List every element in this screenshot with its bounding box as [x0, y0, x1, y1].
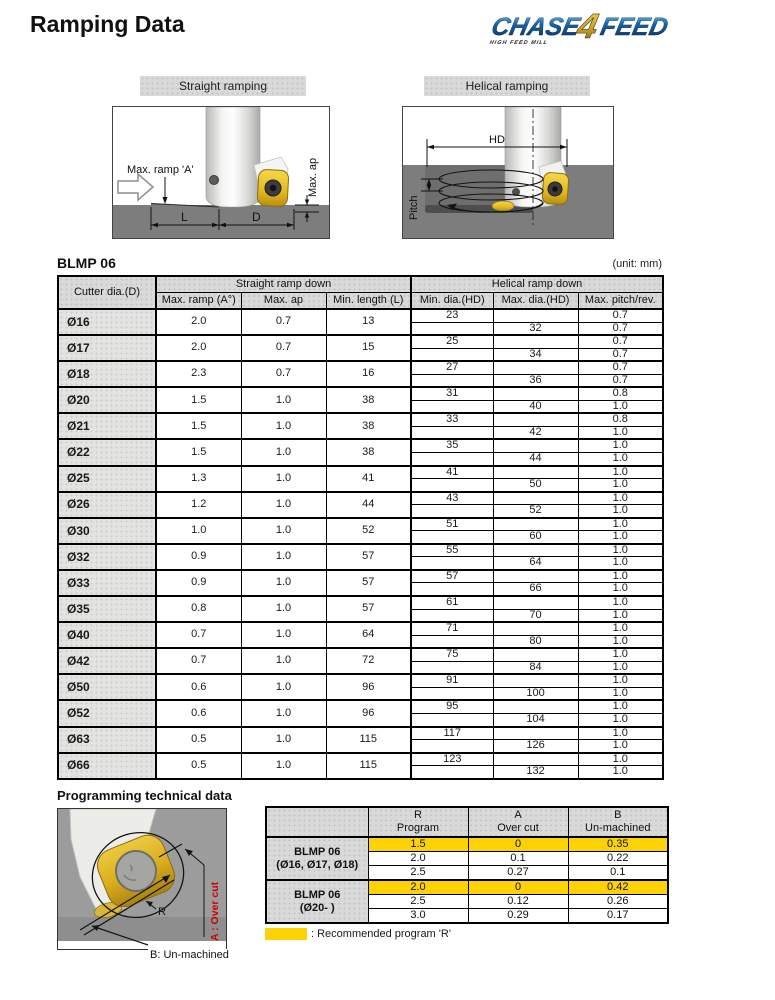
min-dia-cell [411, 505, 493, 518]
r-program-cell: 1.5 [368, 837, 468, 852]
max-dia-cell [493, 518, 578, 531]
max-ramp-cell: 2.0 [156, 335, 241, 361]
min-dia-cell [411, 766, 493, 779]
col-header-min-length: Min. length (L) [326, 293, 411, 310]
min-dia-cell: 35 [411, 439, 493, 452]
max-dia-cell [493, 309, 578, 322]
tool-body [206, 107, 260, 207]
pitch-cell: 1.0 [578, 570, 663, 583]
logo-tagline: HIGH FEED MILL [489, 40, 548, 46]
a-overcut-cell: 0.29 [468, 909, 568, 924]
max-dia-cell: 126 [493, 740, 578, 753]
min-length-cell: 38 [326, 413, 411, 439]
max-dia-cell [493, 674, 578, 687]
max-dia-cell [493, 387, 578, 400]
page-title: Ramping Data [30, 11, 185, 38]
unit-label: (unit: mm) [57, 258, 662, 270]
pitch-cell: 1.0 [578, 648, 663, 661]
workpiece [113, 205, 329, 238]
feed-direction-arrow [118, 174, 153, 200]
min-length-cell: 72 [326, 648, 411, 674]
pitch-cell: 1.0 [578, 596, 663, 609]
group-header-helical: Helical ramp down [411, 276, 663, 293]
max-ap-cell: 1.0 [241, 727, 326, 753]
max-dia-cell: 32 [493, 322, 578, 335]
cutter-dia-cell: Ø20 [58, 387, 156, 413]
max-ap-cell: 1.0 [241, 622, 326, 648]
min-dia-cell [411, 531, 493, 544]
max-ramp-cell: 1.2 [156, 492, 241, 518]
cutter-dia-cell: Ø63 [58, 727, 156, 753]
max-ramp-cell: 0.9 [156, 570, 241, 596]
max-dia-cell: 40 [493, 400, 578, 413]
group-header-straight: Straight ramp down [156, 276, 411, 293]
max-ramp-cell: 0.8 [156, 596, 241, 622]
prog-header-a: AOver cut [468, 807, 568, 837]
cutter-dia-cell: Ø21 [58, 413, 156, 439]
legend-text: : Recommended program 'R' [311, 928, 451, 940]
prog-header-blank [266, 807, 368, 837]
cutter-dia-cell: Ø17 [58, 335, 156, 361]
b-unmachined-cell: 0.1 [568, 866, 668, 881]
chase4feed-logo: CHASE 4 FEED HIGH FEED MILL [482, 8, 700, 50]
min-length-cell: 57 [326, 596, 411, 622]
pitch-cell: 1.0 [578, 466, 663, 479]
max-ramp-cell: 1.5 [156, 413, 241, 439]
min-dia-cell [411, 609, 493, 622]
min-length-cell: 57 [326, 544, 411, 570]
min-length-cell: 52 [326, 518, 411, 544]
min-dia-cell [411, 557, 493, 570]
col-header-max-pitch: Max. pitch/rev. [578, 293, 663, 310]
min-length-cell: 15 [326, 335, 411, 361]
pitch-cell: 1.0 [578, 674, 663, 687]
pitch-cell: 1.0 [578, 753, 663, 766]
r-program-cell: 2.0 [368, 852, 468, 866]
r-program-cell: 2.0 [368, 880, 468, 895]
min-dia-cell: 51 [411, 518, 493, 531]
cutter-dia-cell: Ø25 [58, 466, 156, 492]
min-dia-cell: 25 [411, 335, 493, 348]
b-unmachined-cell: 0.26 [568, 895, 668, 909]
min-dia-cell: 75 [411, 648, 493, 661]
max-ap-cell: 1.0 [241, 700, 326, 726]
programming-heading: Programming technical data [57, 788, 232, 803]
pitch-cell: 1.0 [578, 492, 663, 505]
min-dia-cell [411, 348, 493, 361]
min-length-cell: 38 [326, 387, 411, 413]
max-ap-cell: 0.7 [241, 335, 326, 361]
min-dia-cell: 95 [411, 700, 493, 713]
max-ramp-cell: 0.7 [156, 648, 241, 674]
d-dimension-label: D [252, 210, 261, 224]
max-ramp-cell: 0.5 [156, 753, 241, 779]
col-header-max-ramp: Max. ramp (A°) [156, 293, 241, 310]
min-length-cell: 115 [326, 753, 411, 779]
pitch-cell: 1.0 [578, 661, 663, 674]
pitch-cell: 1.0 [578, 544, 663, 557]
pitch-cell: 0.7 [578, 374, 663, 387]
max-ramp-cell: 0.6 [156, 700, 241, 726]
pitch-cell: 1.0 [578, 727, 663, 740]
r-program-cell: 2.5 [368, 895, 468, 909]
max-dia-cell: 34 [493, 348, 578, 361]
max-dia-cell: 52 [493, 505, 578, 518]
min-dia-cell: 123 [411, 753, 493, 766]
b-unmachined-cell: 0.17 [568, 909, 668, 924]
pitch-cell: 0.8 [578, 387, 663, 400]
max-dia-cell [493, 439, 578, 452]
max-dia-cell [493, 466, 578, 479]
main-table-body: Ø162.00.713230.7320.7Ø172.00.715250.7340… [58, 309, 663, 779]
min-dia-cell [411, 635, 493, 648]
side-screw [210, 176, 219, 185]
r-label: R [158, 906, 166, 918]
min-dia-cell [411, 687, 493, 700]
pitch-cell: 1.0 [578, 766, 663, 779]
max-ap-cell: 1.0 [241, 648, 326, 674]
min-length-cell: 96 [326, 700, 411, 726]
max-dia-cell [493, 727, 578, 740]
helical-ramping-diagram: HD Pitch [402, 106, 614, 239]
a-overcut-cell: 0.12 [468, 895, 568, 909]
prog-header-r: RProgram [368, 807, 468, 837]
min-dia-cell [411, 374, 493, 387]
pitch-cell: 0.7 [578, 348, 663, 361]
min-dia-cell: 61 [411, 596, 493, 609]
max-dia-cell [493, 544, 578, 557]
max-ramp-cell: 1.0 [156, 518, 241, 544]
min-dia-cell: 27 [411, 361, 493, 374]
pitch-cell: 0.7 [578, 322, 663, 335]
min-length-cell: 57 [326, 570, 411, 596]
max-ap-cell: 1.0 [241, 387, 326, 413]
max-ap-cell: 0.7 [241, 309, 326, 335]
min-dia-cell [411, 583, 493, 596]
programming-table: RProgram AOver cut BUn-machined BLMP 06(… [265, 806, 669, 924]
cutter-dia-cell: Ø35 [58, 596, 156, 622]
pitch-cell: 1.0 [578, 609, 663, 622]
max-dia-cell: 104 [493, 713, 578, 726]
legend: : Recommended program 'R' [265, 928, 451, 940]
pitch-cell: 1.0 [578, 439, 663, 452]
prog-header-b: BUn-machined [568, 807, 668, 837]
max-dia-cell: 44 [493, 453, 578, 466]
b-unmachined-cell: 0.22 [568, 852, 668, 866]
col-header-min-dia: Min. dia.(HD) [411, 293, 493, 310]
cutter-dia-cell: Ø30 [58, 518, 156, 544]
page: Ramping Data CHASE 4 FEED HIGH FEED MILL… [0, 0, 775, 1000]
max-ramp-cell: 0.6 [156, 674, 241, 700]
min-dia-cell [411, 426, 493, 439]
max-dia-cell: 42 [493, 426, 578, 439]
max-ap-cell: 1.0 [241, 413, 326, 439]
b-unmachined-cell: 0.42 [568, 880, 668, 895]
unmachined-label: B: Un-machined [148, 949, 231, 961]
max-dia-cell [493, 622, 578, 635]
max-ap-cell: 1.0 [241, 753, 326, 779]
cutter-dia-cell: Ø66 [58, 753, 156, 779]
logo-text-chase: CHASE [489, 13, 583, 41]
max-dia-cell: 100 [493, 687, 578, 700]
max-ap-cell: 1.0 [241, 570, 326, 596]
max-ap-cell: 1.0 [241, 466, 326, 492]
min-dia-cell: 117 [411, 727, 493, 740]
r-program-cell: 3.0 [368, 909, 468, 924]
recommended-swatch [265, 928, 307, 940]
r-program-cell: 2.5 [368, 866, 468, 881]
pitch-cell: 1.0 [578, 713, 663, 726]
max-ap-cell: 1.0 [241, 674, 326, 700]
pitch-cell: 1.0 [578, 505, 663, 518]
min-dia-cell [411, 453, 493, 466]
pitch-cell: 0.7 [578, 309, 663, 322]
min-dia-cell [411, 713, 493, 726]
min-length-cell: 38 [326, 439, 411, 465]
cutter-dia-cell: Ø22 [58, 439, 156, 465]
max-dia-cell: 80 [493, 635, 578, 648]
cutter-dia-cell: Ø26 [58, 492, 156, 518]
prog-group-label: BLMP 06(Ø20- ) [266, 880, 368, 923]
max-ramp-label: Max. ramp 'A' [127, 164, 194, 176]
cutter-dia-cell: Ø40 [58, 622, 156, 648]
min-dia-cell: 31 [411, 387, 493, 400]
min-dia-cell: 71 [411, 622, 493, 635]
max-ramp-cell: 1.3 [156, 466, 241, 492]
min-dia-cell: 41 [411, 466, 493, 479]
max-ramp-cell: 0.5 [156, 727, 241, 753]
min-dia-cell [411, 400, 493, 413]
prog-group-label: BLMP 06(Ø16, Ø17, Ø18) [266, 837, 368, 880]
programming-insert-figure: R A : Over cut [57, 808, 227, 950]
max-ramp-cell: 2.3 [156, 361, 241, 387]
pitch-cell: 1.0 [578, 622, 663, 635]
cutter-dia-cell: Ø33 [58, 570, 156, 596]
min-length-cell: 16 [326, 361, 411, 387]
min-length-cell: 41 [326, 466, 411, 492]
a-overcut-cell: 0.27 [468, 866, 568, 881]
max-dia-cell: 64 [493, 557, 578, 570]
programming-table-body: BLMP 06(Ø16, Ø17, Ø18)1.500.352.00.10.22… [266, 837, 668, 923]
min-length-cell: 96 [326, 674, 411, 700]
a-overcut-cell: 0 [468, 880, 568, 895]
min-dia-cell [411, 740, 493, 753]
max-ap-cell: 1.0 [241, 518, 326, 544]
cutter-dia-cell: Ø52 [58, 700, 156, 726]
min-dia-cell [411, 479, 493, 492]
cutter-dia-cell: Ø42 [58, 648, 156, 674]
max-ap-cell: 1.0 [241, 596, 326, 622]
pitch-cell: 1.0 [578, 400, 663, 413]
pitch-label: Pitch [408, 196, 420, 220]
max-ap-cell: 0.7 [241, 361, 326, 387]
pitch-cell: 0.7 [578, 335, 663, 348]
min-dia-cell: 91 [411, 674, 493, 687]
max-dia-cell [493, 492, 578, 505]
pitch-cell: 1.0 [578, 426, 663, 439]
max-dia-cell [493, 648, 578, 661]
straight-ramping-diagram: Max. ramp 'A' Max. ap L D [112, 106, 330, 239]
ramping-data-table: Cutter dia.(D) Straight ramp down Helica… [57, 275, 664, 780]
max-ap-label: Max. ap [307, 158, 319, 197]
a-overcut-cell: 0 [468, 837, 568, 852]
min-dia-cell: 55 [411, 544, 493, 557]
straight-ramping-label: Straight ramping [140, 76, 306, 96]
col-header-max-dia: Max. dia.(HD) [493, 293, 578, 310]
max-ap-cell: 1.0 [241, 439, 326, 465]
min-dia-cell [411, 661, 493, 674]
pitch-cell: 1.0 [578, 700, 663, 713]
min-dia-cell: 43 [411, 492, 493, 505]
max-dia-cell: 132 [493, 766, 578, 779]
pitch-cell: 1.0 [578, 518, 663, 531]
cutter-dia-cell: Ø32 [58, 544, 156, 570]
cutter-dia-cell: Ø18 [58, 361, 156, 387]
overcut-label: A : Over cut [209, 881, 221, 941]
yellow-insert-tip [492, 201, 514, 211]
min-dia-cell: 57 [411, 570, 493, 583]
max-ramp-cell: 1.5 [156, 439, 241, 465]
col-header-max-ap: Max. ap [241, 293, 326, 310]
min-dia-cell [411, 322, 493, 335]
max-ap-cell: 1.0 [241, 544, 326, 570]
pitch-cell: 1.0 [578, 635, 663, 648]
max-dia-cell [493, 570, 578, 583]
cutter-dia-cell: Ø16 [58, 309, 156, 335]
pitch-cell: 1.0 [578, 479, 663, 492]
max-dia-cell [493, 596, 578, 609]
pitch-cell: 1.0 [578, 687, 663, 700]
max-dia-cell [493, 413, 578, 426]
logo-text-feed: FEED [598, 13, 671, 41]
min-length-cell: 64 [326, 622, 411, 648]
hd-dimension-label: HD [489, 134, 505, 146]
a-overcut-cell: 0.1 [468, 852, 568, 866]
max-ap-cell: 1.0 [241, 492, 326, 518]
max-dia-cell: 36 [493, 374, 578, 387]
max-dia-cell [493, 335, 578, 348]
min-dia-cell: 33 [411, 413, 493, 426]
max-dia-cell: 50 [493, 479, 578, 492]
pitch-cell: 0.7 [578, 361, 663, 374]
max-dia-cell [493, 700, 578, 713]
pitch-cell: 0.8 [578, 413, 663, 426]
b-unmachined-cell: 0.35 [568, 837, 668, 852]
max-dia-cell: 60 [493, 531, 578, 544]
max-ramp-cell: 0.7 [156, 622, 241, 648]
insert-bore [116, 851, 156, 891]
col-header-cutter-dia: Cutter dia.(D) [58, 276, 156, 309]
min-length-cell: 115 [326, 727, 411, 753]
min-dia-cell: 23 [411, 309, 493, 322]
max-dia-cell: 66 [493, 583, 578, 596]
max-dia-cell [493, 361, 578, 374]
max-ramp-cell: 2.0 [156, 309, 241, 335]
min-length-cell: 13 [326, 309, 411, 335]
helical-ramping-label: Helical ramping [424, 76, 590, 96]
pitch-cell: 1.0 [578, 531, 663, 544]
pitch-cell: 1.0 [578, 557, 663, 570]
max-ramp-cell: 0.9 [156, 544, 241, 570]
max-dia-cell: 70 [493, 609, 578, 622]
pitch-cell: 1.0 [578, 583, 663, 596]
min-length-cell: 44 [326, 492, 411, 518]
l-dimension-label: L [181, 210, 188, 224]
max-ramp-cell: 1.5 [156, 387, 241, 413]
pitch-cell: 1.0 [578, 453, 663, 466]
cutter-dia-cell: Ø50 [58, 674, 156, 700]
pitch-cell: 1.0 [578, 740, 663, 753]
max-dia-cell: 84 [493, 661, 578, 674]
max-dia-cell [493, 753, 578, 766]
